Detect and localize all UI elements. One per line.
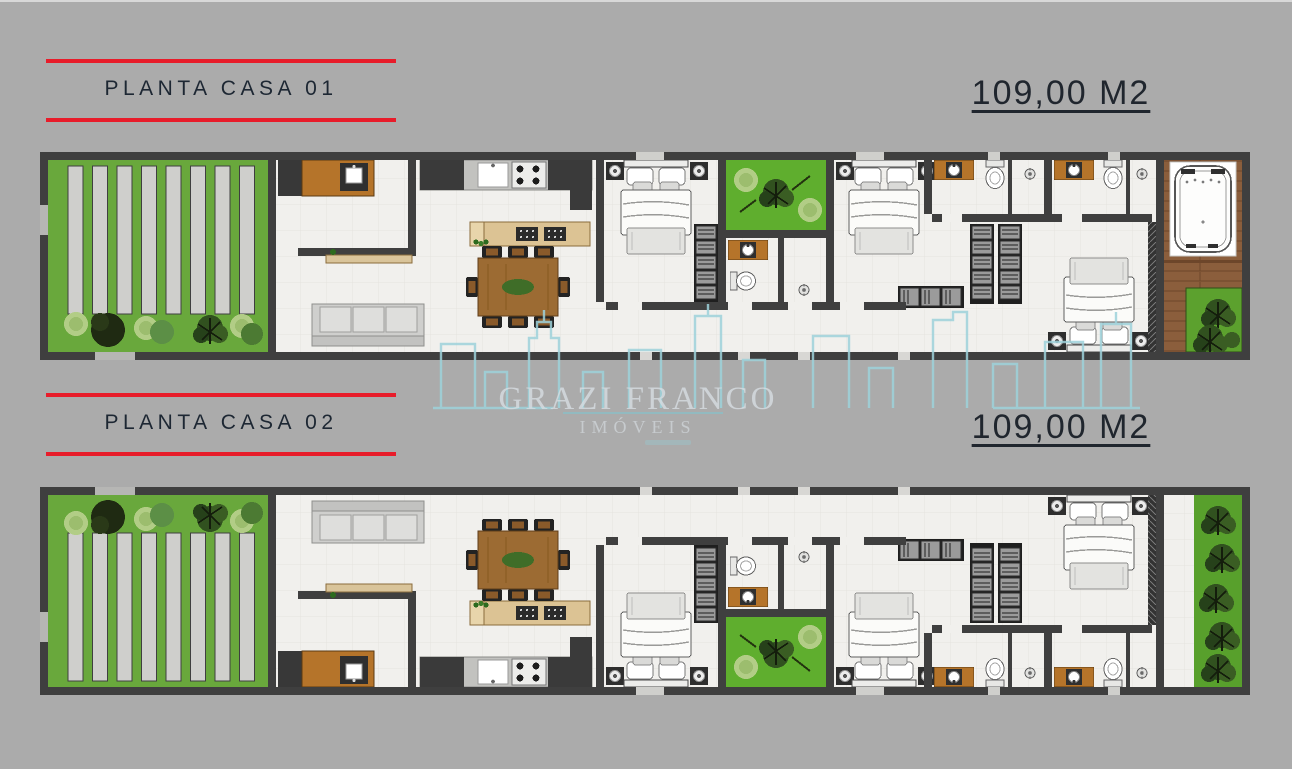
vanity-icon <box>934 160 974 180</box>
watermark-subtitle: IMÓVEIS <box>488 417 788 438</box>
stove <box>512 162 546 188</box>
sofa <box>312 304 424 346</box>
jacuzzi-icon <box>1175 166 1231 252</box>
vanity-icon <box>728 240 768 260</box>
red-rule-bottom-casa-01 <box>46 118 396 122</box>
nightstand-icon <box>1132 332 1150 350</box>
wall <box>826 152 834 302</box>
area-label-casa-02: 109,00 M2 <box>916 408 1206 447</box>
plan-title-casa-02: PLANTA CASA 02 <box>46 411 396 435</box>
toilet-icon <box>986 160 1004 189</box>
wall <box>1044 152 1052 222</box>
shower-drain-icon <box>799 284 809 296</box>
nightstand-icon <box>606 162 624 180</box>
wall <box>1008 152 1012 214</box>
nightstand-icon <box>1048 332 1066 350</box>
toilet-icon <box>730 272 756 290</box>
wardrobe-icon <box>694 224 718 304</box>
floor-plan-casa-01 <box>40 152 1250 360</box>
shower-drain-icon <box>1025 168 1035 180</box>
red-rule-top-casa-01 <box>46 59 396 63</box>
nightstand-icon <box>690 162 708 180</box>
wall <box>778 238 784 302</box>
patio-garden <box>726 160 828 230</box>
corridor-wall <box>606 302 906 310</box>
sideboard <box>326 255 412 263</box>
wall <box>718 152 726 302</box>
watermark-name: GRAZI FRANCO <box>488 381 788 418</box>
wardrobe-icon <box>970 224 994 304</box>
jacuzzi-deck <box>1164 152 1250 360</box>
wardrobe-icon <box>998 224 1022 304</box>
wall <box>924 152 932 214</box>
wall <box>268 152 276 360</box>
centerpiece-plant-icon <box>502 279 534 295</box>
wall <box>1156 152 1164 360</box>
red-rule-bottom-casa-02 <box>46 452 396 456</box>
shower-drain-icon <box>1137 168 1147 180</box>
plan-interior <box>40 152 1250 360</box>
area-label-casa-01: 109,00 M2 <box>916 74 1206 113</box>
nightstand-icon <box>836 162 854 180</box>
plan-title-casa-01: PLANTA CASA 01 <box>46 77 396 101</box>
wardrobe-icon <box>898 286 964 308</box>
rear-garden-strip <box>1164 487 1250 695</box>
wall <box>596 152 604 302</box>
front-garden <box>48 160 270 352</box>
red-rule-top-casa-02 <box>46 393 396 397</box>
dining-table <box>466 246 570 328</box>
vanity-icon <box>1054 160 1094 180</box>
wall <box>932 214 1152 222</box>
wall <box>408 152 416 256</box>
rear-garden-patch <box>1186 288 1242 354</box>
floor-plan-casa-02 <box>40 487 1250 695</box>
watermark-underline <box>563 412 723 414</box>
plant-icon <box>330 249 336 255</box>
bush-icon <box>64 312 88 336</box>
toilet-icon <box>1104 160 1122 189</box>
page-top-strip <box>0 0 1292 2</box>
wall <box>726 230 828 238</box>
wall <box>1126 152 1130 214</box>
watermark-microtext <box>645 440 691 445</box>
front-gate <box>95 352 135 360</box>
kitchen-island <box>470 222 590 246</box>
side-gate <box>40 205 48 235</box>
